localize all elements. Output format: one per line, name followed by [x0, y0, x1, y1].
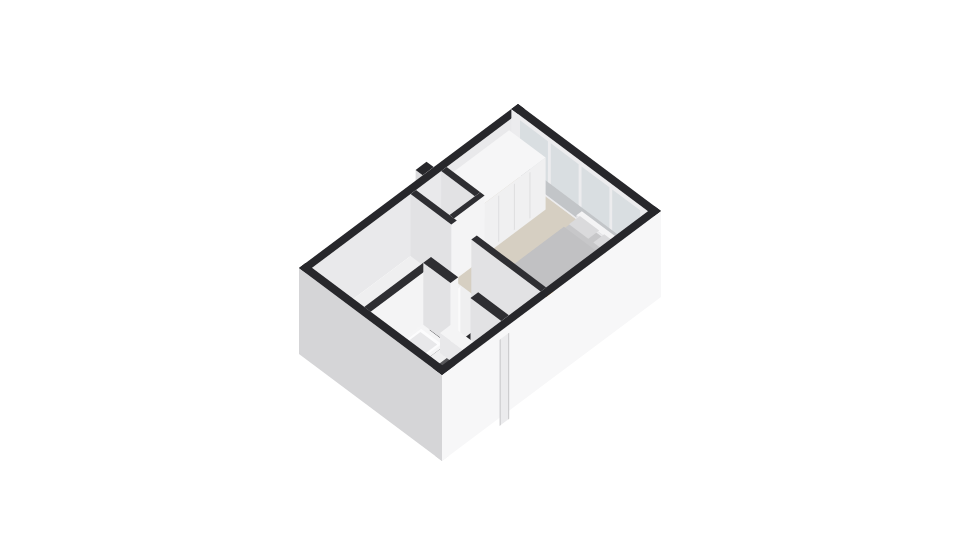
floorplan-3d-render [0, 0, 960, 540]
floorplan-page [0, 0, 960, 540]
facade-stair-bay [500, 333, 509, 426]
wardrobe-door-seam-2 [514, 184, 515, 231]
wall-southeast-exterior-side-sw [436, 370, 442, 461]
wardrobe-door-seam-1 [498, 195, 499, 242]
facade-seam-right [508, 333, 509, 420]
wardrobe-door-seam-3 [530, 172, 531, 219]
facade-seam-left [500, 339, 501, 426]
